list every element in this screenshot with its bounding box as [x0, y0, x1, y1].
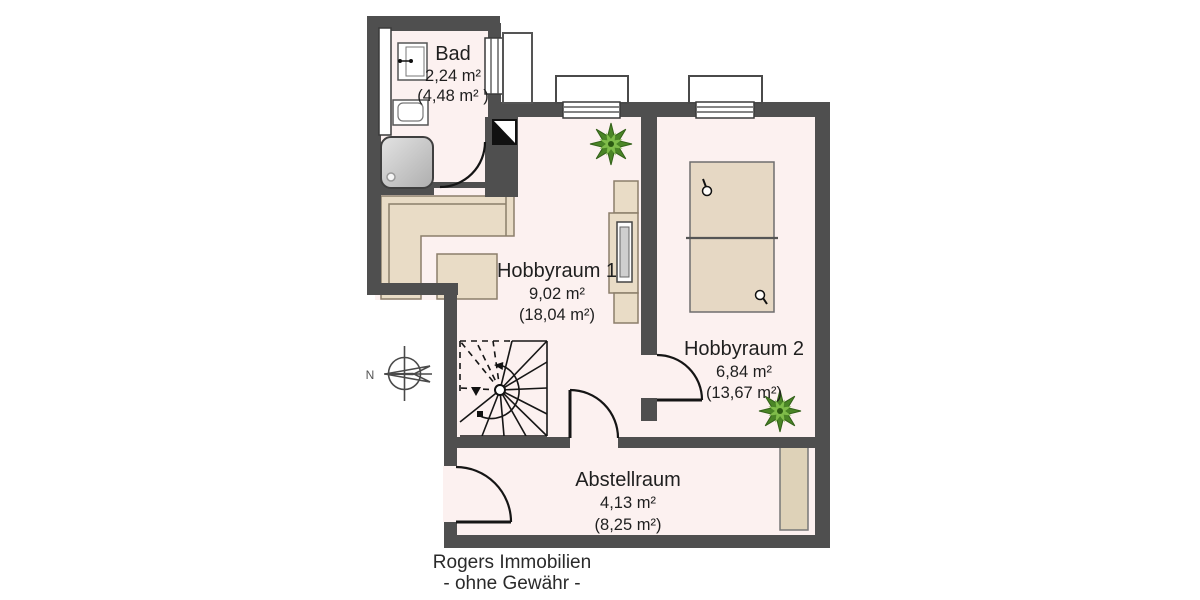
sink-icon [398, 43, 427, 80]
room-area: 6,84 m² [716, 363, 772, 381]
compass-icon: N [366, 346, 432, 401]
room-area-total: (18,04 m²) [519, 306, 595, 324]
window-icon [556, 76, 628, 118]
window-icon [689, 76, 762, 118]
room-name: Hobbyraum 1 [497, 260, 617, 282]
company-name: Rogers Immobilien [433, 552, 591, 573]
room-area: 4,13 m² [600, 494, 656, 512]
footer: Rogers Immobilien - ohne Gewähr - [433, 552, 591, 594]
window-icon [485, 38, 504, 94]
shower-icon [381, 137, 433, 188]
room-area-total: (4,48 m² ) [417, 87, 489, 105]
room-name: Hobbyraum 2 [684, 338, 804, 360]
cabinet-icon [609, 181, 638, 323]
window-icon [379, 28, 391, 135]
bed-icon [686, 162, 778, 312]
floor-plan-drawing: N Bad 2,24 m² (4,48 m² ) Hobbyraum 1 9,0… [0, 0, 1200, 600]
room-area: 2,24 m² [425, 67, 481, 85]
room-name: Bad [435, 43, 471, 65]
room-name: Abstellraum [575, 469, 681, 491]
compass-north-label: N [366, 368, 375, 382]
chimney-icon [493, 120, 516, 144]
floor-plan: N Bad 2,24 m² (4,48 m² ) Hobbyraum 1 9,0… [0, 0, 1200, 600]
room-area-total: (13,67 m²) [706, 384, 782, 402]
wardrobe-icon [780, 447, 808, 530]
room-area-total: (8,25 m²) [595, 516, 662, 534]
disclaimer: - ohne Gewähr - [443, 573, 580, 594]
shaft-niche [503, 33, 532, 103]
room-area: 9,02 m² [529, 285, 585, 303]
plant-icon [590, 123, 632, 165]
